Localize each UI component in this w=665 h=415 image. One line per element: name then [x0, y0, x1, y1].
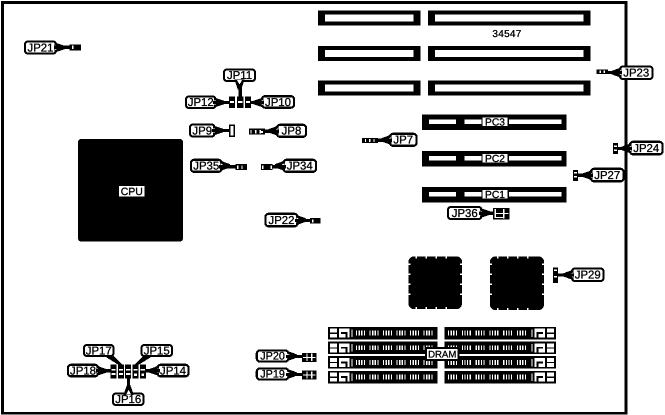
- svg-text:DRAM: DRAM: [428, 350, 456, 361]
- svg-text:JP12: JP12: [188, 97, 214, 109]
- svg-text:JP8: JP8: [282, 126, 302, 138]
- svg-text:CPU: CPU: [121, 186, 143, 198]
- svg-text:34547: 34547: [492, 29, 521, 40]
- svg-text:JP24: JP24: [633, 143, 659, 155]
- svg-text:PC3: PC3: [485, 117, 505, 128]
- svg-text:JP10: JP10: [265, 97, 291, 109]
- svg-text:JP21: JP21: [28, 42, 54, 54]
- svg-text:JP19: JP19: [260, 369, 285, 381]
- svg-text:JP9: JP9: [192, 125, 212, 137]
- svg-text:JP22: JP22: [269, 215, 295, 227]
- svg-text:JP36: JP36: [452, 208, 478, 220]
- svg-text:JP34: JP34: [287, 161, 313, 173]
- svg-text:JP16: JP16: [115, 394, 141, 406]
- svg-text:JP18: JP18: [70, 365, 96, 377]
- svg-text:JP35: JP35: [193, 161, 219, 173]
- svg-text:JP29: JP29: [575, 270, 601, 282]
- svg-text:JP23: JP23: [623, 68, 649, 80]
- svg-text:JP7: JP7: [393, 135, 413, 147]
- svg-text:JP27: JP27: [594, 170, 620, 182]
- svg-text:PC2: PC2: [485, 154, 505, 165]
- svg-text:PC1: PC1: [485, 190, 505, 201]
- svg-text:JP14: JP14: [160, 365, 186, 377]
- svg-text:JP20: JP20: [260, 351, 285, 363]
